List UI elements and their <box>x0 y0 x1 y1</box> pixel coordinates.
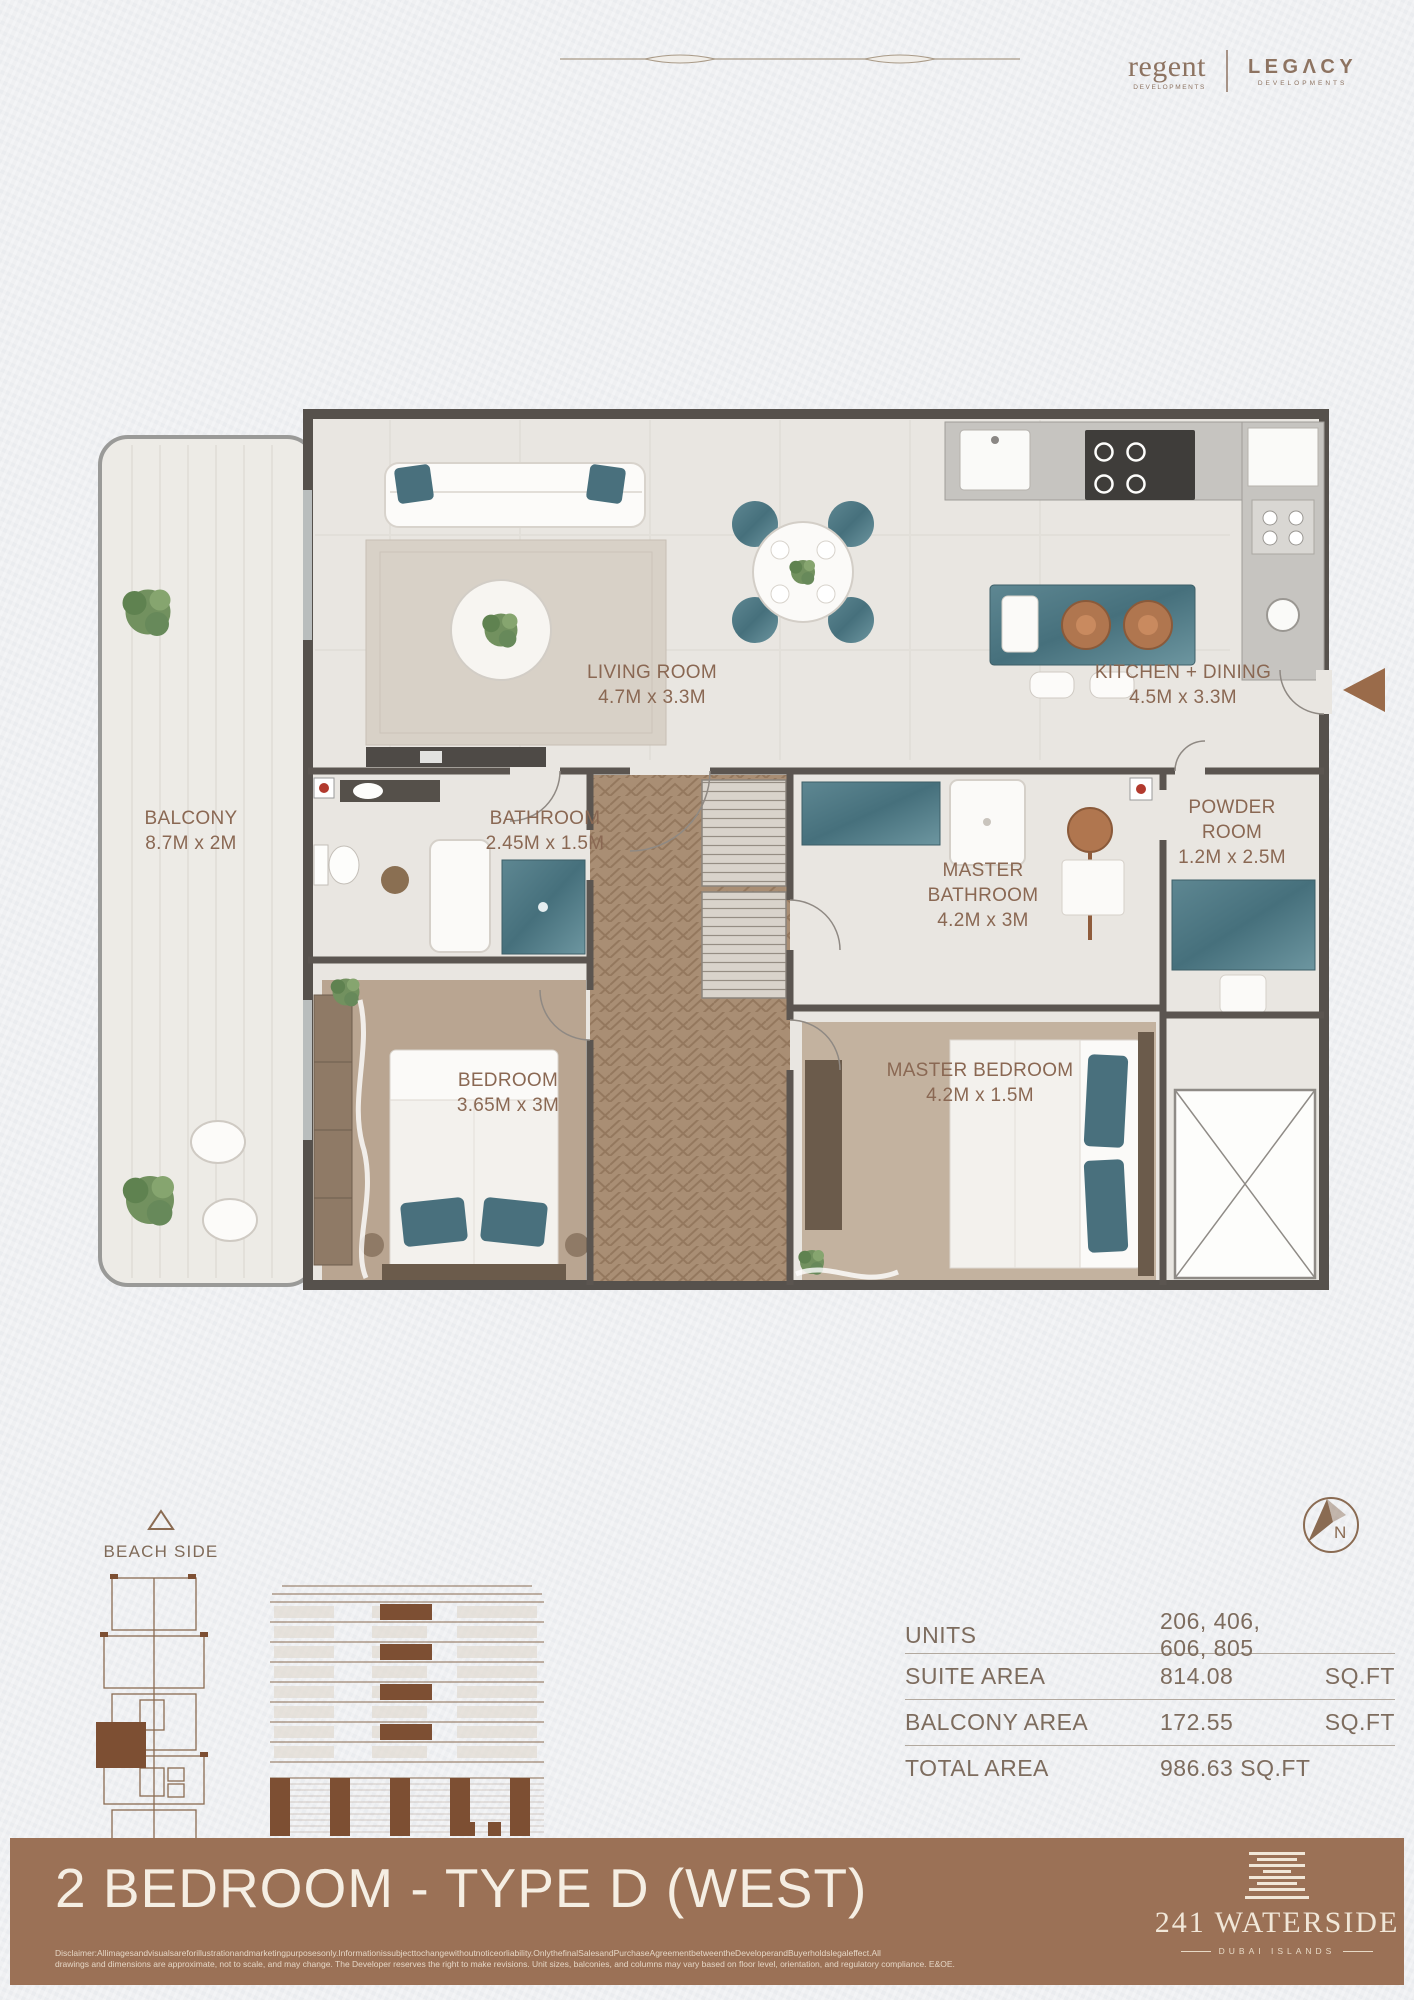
master-dresser <box>805 1060 842 1230</box>
headboard <box>382 1264 566 1280</box>
plan-title: 2 BEDROOM - TYPE D (WEST) <box>55 1860 867 1918</box>
master-bath-marble <box>802 782 940 845</box>
project-logo: 241 WATERSIDE DUBAI ISLANDS <box>1162 1850 1392 1956</box>
compass-north-label: N <box>1334 1523 1346 1542</box>
balcony-chair <box>191 1121 245 1163</box>
key-plan-figure <box>90 1572 220 1862</box>
master-vanity <box>1062 860 1124 915</box>
fridge <box>1248 428 1318 486</box>
entrance-arrow-icon <box>1343 668 1385 712</box>
bed-pillow <box>400 1197 468 1247</box>
project-location-row: DUBAI ISLANDS <box>1181 1946 1374 1956</box>
row-label: TOTAL AREA <box>905 1755 1160 1782</box>
tv-console <box>366 747 546 767</box>
bed-pillow <box>1084 1159 1129 1253</box>
row-unit: SQ.FT <box>1311 1709 1395 1736</box>
bed-pillow <box>1084 1054 1129 1148</box>
living-room-zone <box>366 463 666 767</box>
row-label: SUITE AREA <box>905 1663 1160 1690</box>
island-sink <box>1002 596 1038 652</box>
powder-basin <box>1220 975 1266 1013</box>
toilet <box>314 845 328 885</box>
balcony-zone <box>100 437 315 1285</box>
regent-logo-name: regent <box>1128 52 1206 82</box>
master-headboard <box>1138 1032 1154 1276</box>
table-row-balcony-area: BALCONY AREA 172.55 SQ.FT <box>905 1699 1395 1745</box>
sliding-door <box>303 1000 312 1140</box>
sofa-pillow <box>586 464 627 505</box>
kitchen-sink <box>1267 599 1299 631</box>
dining-zone <box>732 501 874 643</box>
bed-pillow <box>480 1197 548 1247</box>
table-row-total-area: TOTAL AREA 986.63 SQ.FT <box>905 1745 1395 1791</box>
sliding-door <box>303 490 312 640</box>
project-location: DUBAI ISLANDS <box>1219 1946 1336 1956</box>
logo-divider <box>1226 50 1228 92</box>
row-label: UNITS <box>905 1622 1160 1649</box>
logo-dash <box>1181 1951 1211 1952</box>
legacy-logo-tagline: DEVELOPMENTS <box>1258 80 1347 87</box>
regent-logo: regent DEVELOPMENTS <box>1128 52 1206 91</box>
building-bars-icon <box>1244 1850 1310 1902</box>
footer-bar: 2 BEDROOM - TYPE D (WEST) Disclaimer:All… <box>10 1838 1404 1985</box>
key-plan-unit-highlight <box>96 1722 146 1768</box>
beach-side-marker: BEACH SIDE <box>88 1508 234 1562</box>
regent-logo-tagline: DEVELOPMENTS <box>1133 84 1206 91</box>
table-row-units: UNITS 206, 406, 606, 805 <box>905 1608 1395 1653</box>
project-name: 241 WATERSIDE <box>1155 1906 1400 1940</box>
row-value: 172.55 <box>1160 1709 1311 1736</box>
north-compass-icon: N <box>1294 1488 1368 1562</box>
row-value: 206, 406, 606, 805 <box>1160 1608 1311 1662</box>
legacy-logo: LEGΛCY DEVELOPMENTS <box>1248 56 1357 87</box>
wall-fixture-red-dot <box>319 783 329 793</box>
disclaimer-text: Disclaimer:Allimagesandvisualsareforillu… <box>55 1948 1145 1969</box>
balcony-chair <box>203 1199 257 1241</box>
floorplan-graphic <box>90 400 1390 1300</box>
row-unit: SQ.FT <box>1311 1663 1395 1690</box>
disclaimer-line-1: Disclaimer:Allimagesandvisualsareforillu… <box>55 1948 1145 1959</box>
beach-side-triangle-icon <box>146 1508 176 1532</box>
stool <box>381 866 409 894</box>
wall-fixture-red-dot <box>1136 784 1146 794</box>
stove <box>1085 430 1195 500</box>
row-value: 986.63 SQ.FT <box>1160 1755 1311 1782</box>
brochure-page: regent DEVELOPMENTS LEGΛCY DEVELOPMENTS <box>0 0 1414 2000</box>
table-row-suite-area: SUITE AREA 814.08 SQ.FT <box>905 1653 1395 1699</box>
island-stool <box>1030 672 1074 698</box>
row-value: 814.08 <box>1160 1663 1311 1690</box>
building-elevation-figure <box>262 1578 552 1868</box>
developer-logos: regent DEVELOPMENTS LEGΛCY DEVELOPMENTS <box>1128 50 1357 92</box>
island-stool <box>1090 672 1134 698</box>
copper-mirror <box>1068 808 1112 852</box>
bathtub <box>430 840 490 952</box>
podium-columns <box>270 1778 530 1836</box>
shaft-void <box>1175 1090 1315 1278</box>
louver-closet <box>702 780 786 886</box>
bedroom-zone <box>314 979 589 1281</box>
area-table: UNITS 206, 406, 606, 805 SUITE AREA 814.… <box>905 1608 1395 1791</box>
logo-dash <box>1343 1951 1373 1952</box>
sofa-pillow <box>394 464 435 505</box>
disclaimer-line-2: drawings and dimensions are approximate,… <box>55 1959 1145 1970</box>
row-label: BALCONY AREA <box>905 1709 1160 1736</box>
louver-closet <box>702 892 786 998</box>
master-bedroom-zone <box>796 1022 1156 1280</box>
powder-marble <box>1172 880 1315 970</box>
beach-side-label: BEACH SIDE <box>88 1542 234 1562</box>
legacy-logo-name: LEGΛCY <box>1248 56 1357 78</box>
entrance-opening <box>1316 670 1332 714</box>
header-ornament-divider <box>560 46 1030 72</box>
nightstand <box>565 1233 589 1257</box>
